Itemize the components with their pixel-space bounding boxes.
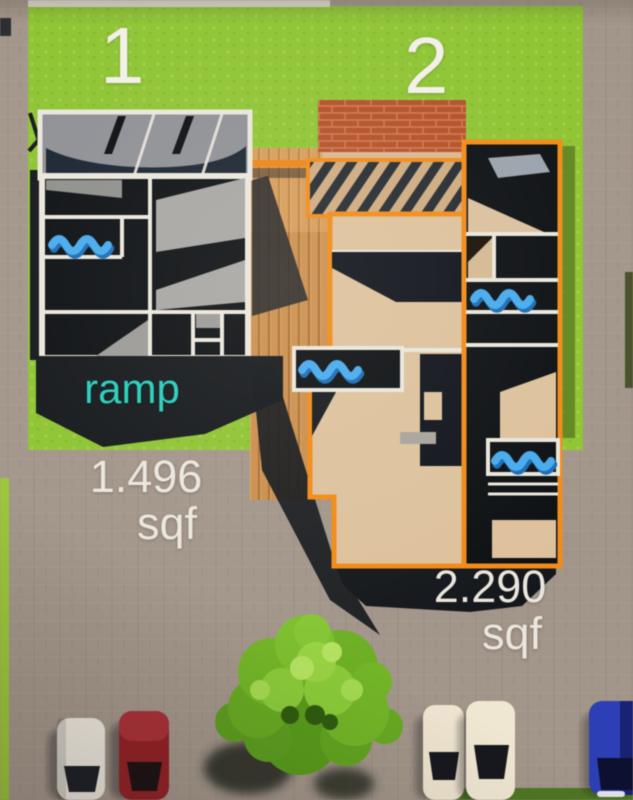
photo-content: 1 2 ramp 1.496 sqf 2.290 sqf — [0, 0, 633, 800]
unit-1-number-label: 1 — [100, 16, 145, 96]
car-cream-2 — [458, 701, 515, 800]
right-hedge-strip — [625, 272, 633, 388]
car-white — [48, 718, 105, 800]
tree-shadow — [314, 768, 374, 800]
car-red — [110, 711, 169, 800]
site-plan: 1 2 ramp 1.496 sqf 2.290 sqf — [0, 0, 633, 800]
ramp-label: ramp — [64, 368, 200, 410]
unit-2-grass-shadow — [561, 146, 575, 438]
unit-2-area-value: 2.290 — [402, 564, 578, 609]
unit-2-pergola — [308, 160, 466, 216]
car-windshield — [64, 766, 100, 792]
unit-2-right-wing — [464, 142, 560, 566]
top-white-strip — [28, 0, 330, 7]
car-blue — [582, 701, 633, 797]
unit-1-area-unit: sqf — [92, 501, 242, 546]
car-windshield — [597, 758, 633, 790]
car-windshield — [429, 752, 459, 780]
unit-2-number-label: 2 — [404, 26, 449, 106]
car-windshield — [474, 745, 509, 779]
car-windshield — [127, 762, 162, 791]
floor-light-patch — [492, 520, 556, 558]
unit-2-area-unit: sqf — [426, 611, 598, 656]
unit-1-floorplan — [42, 176, 248, 358]
floor-light-patch — [196, 314, 222, 328]
unit-1-area-value: 1.496 — [58, 454, 234, 499]
car-cream-1 — [415, 705, 464, 800]
unit-1-roof — [40, 112, 250, 178]
edge-dark-mark — [0, 18, 11, 36]
unit-2-left-room — [294, 348, 402, 390]
left-grass-strip — [0, 478, 9, 800]
